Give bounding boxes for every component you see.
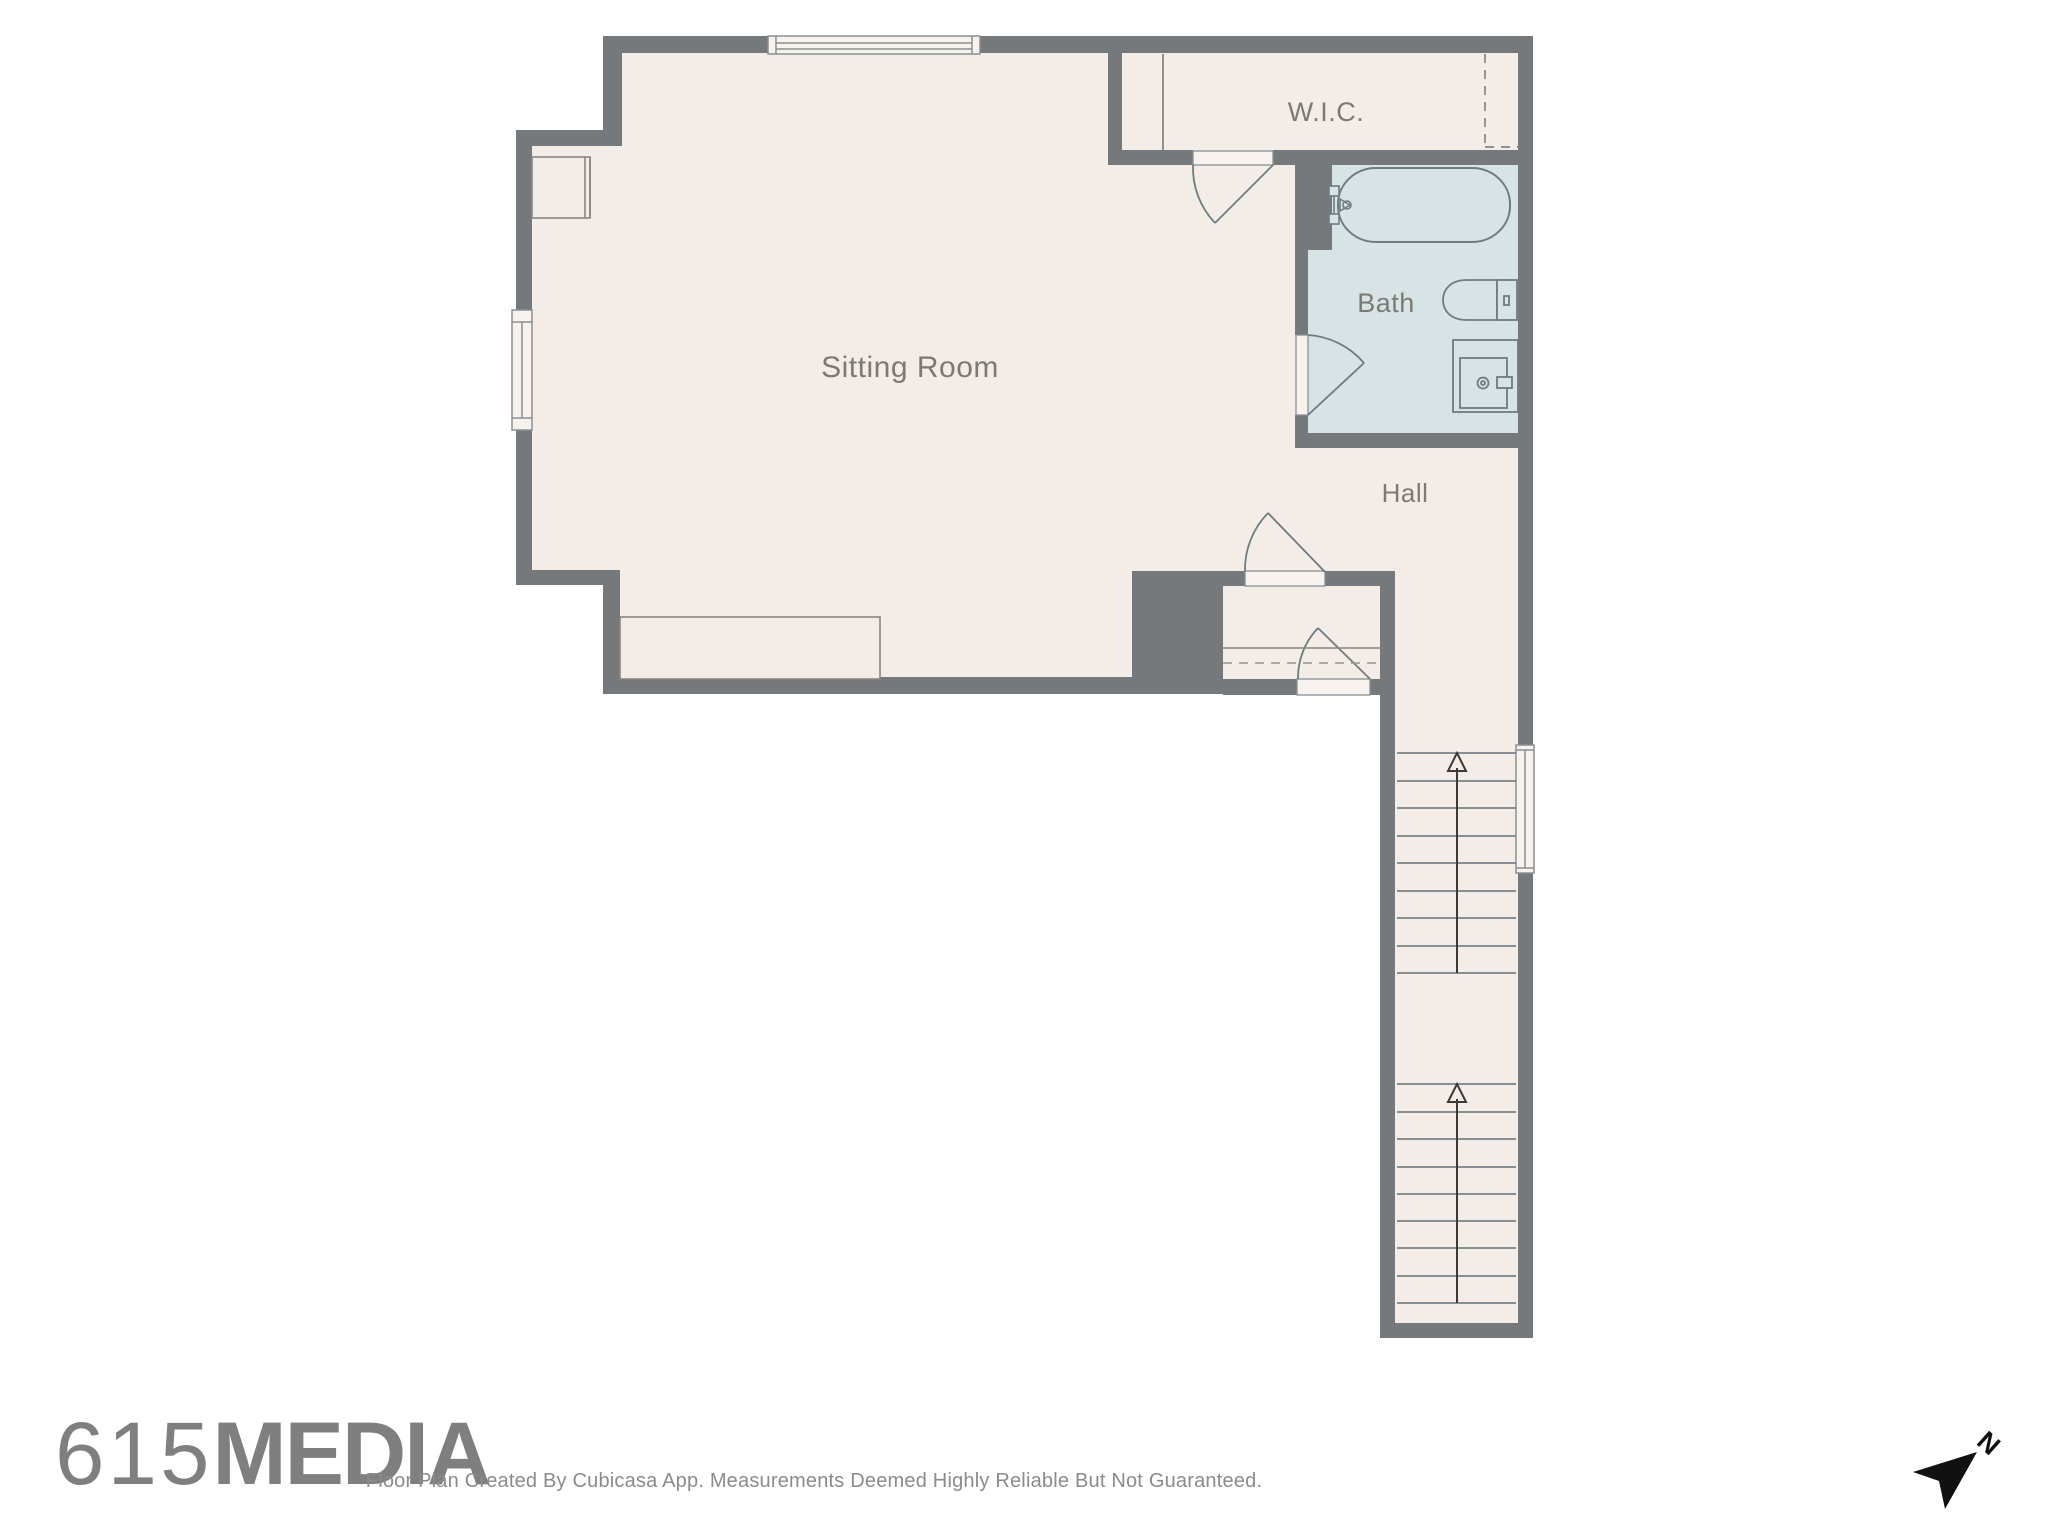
compass: N — [1913, 1426, 2006, 1509]
label-wic: W.I.C. — [1288, 97, 1365, 127]
window-left — [512, 310, 532, 430]
compass-north-label: N — [1971, 1426, 2006, 1461]
footer-disclaimer: Floor Plan Created By Cubicasa App. Meas… — [0, 1470, 1628, 1493]
floor-plan: Sitting Room W.I.C. Bath Hall N — [0, 0, 2048, 1536]
window-stairs-right — [1516, 745, 1534, 873]
window-top — [768, 36, 980, 54]
label-hall: Hall — [1382, 478, 1429, 508]
wall-cabinet — [532, 157, 590, 218]
toilet — [1443, 280, 1517, 320]
label-sitting-room: Sitting Room — [821, 351, 999, 384]
bathtub — [1338, 168, 1510, 242]
north-arrow-icon — [1913, 1452, 1977, 1509]
floor-plan-canvas: Sitting Room W.I.C. Bath Hall N — [0, 0, 2048, 1536]
built-in-bench — [620, 617, 880, 679]
label-bath: Bath — [1357, 288, 1415, 318]
sink-vanity — [1453, 340, 1518, 412]
